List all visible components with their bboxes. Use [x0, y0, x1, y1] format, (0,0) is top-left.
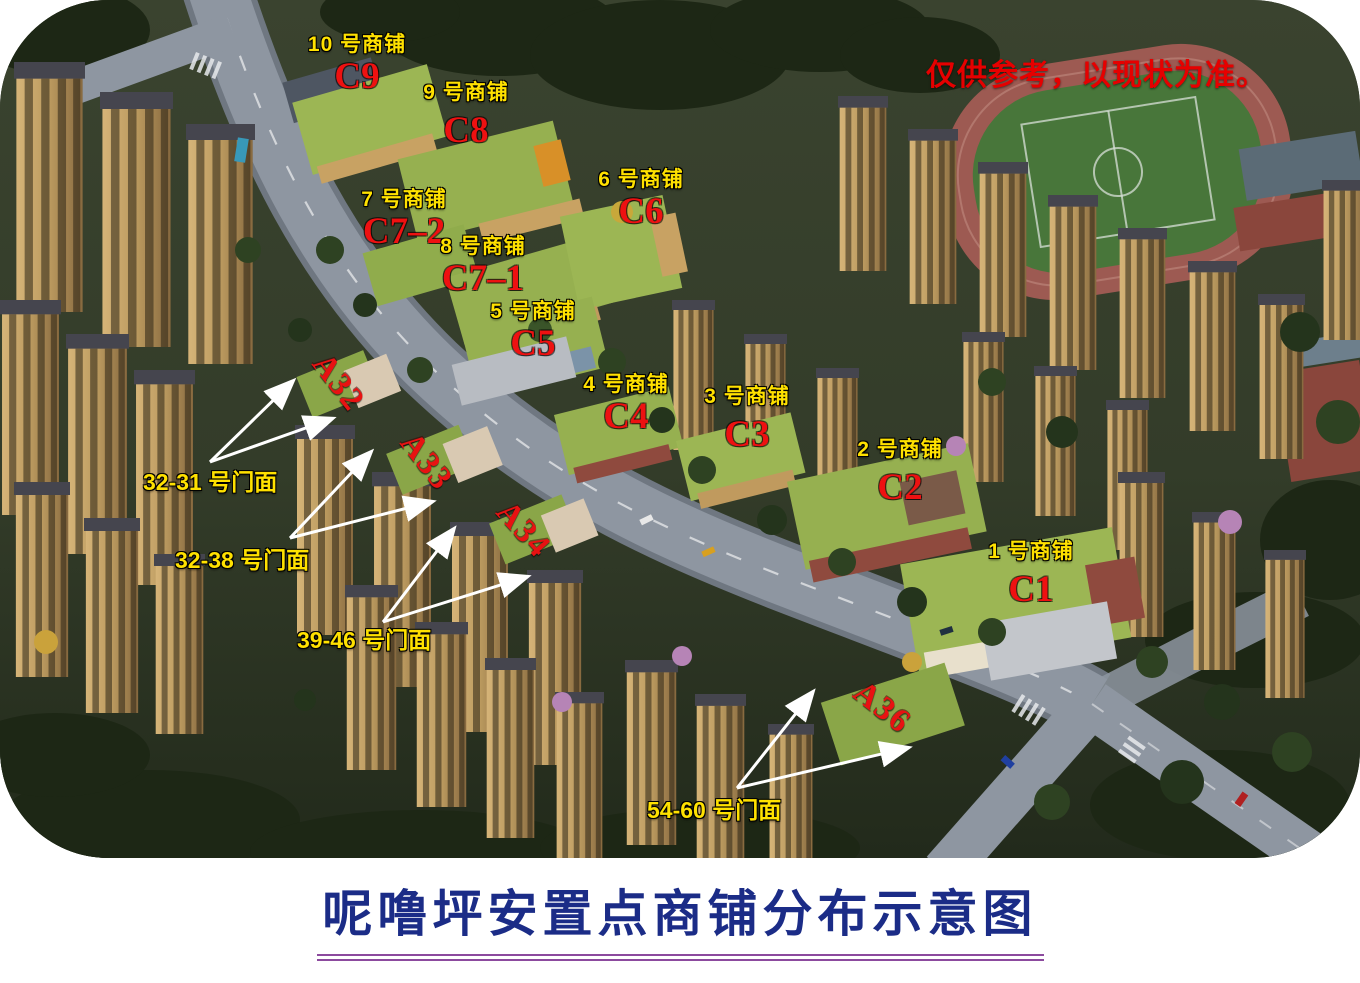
label-storefront-39-46: 39-46 号门面	[297, 621, 431, 655]
label-shop-2: 2 号商铺 C2	[810, 439, 990, 506]
shop-name: 8 号商铺	[393, 236, 573, 258]
shop-name: 2 号商铺	[810, 439, 990, 461]
shop-name: 5 号商铺	[443, 301, 623, 323]
label-storefront-54-60: 54-60 号门面	[647, 791, 781, 825]
shop-code: C2	[810, 469, 990, 506]
shop-code: C9	[267, 58, 447, 95]
shop-name: 1 号商铺	[941, 541, 1121, 563]
aerial-photo: 1 号商铺 C1 2 号商铺 C2 3 号商铺 C3 4 号商铺 C4 5 号商…	[0, 0, 1360, 858]
shop-name: 4 号商铺	[536, 374, 716, 396]
shop-code: C7–1	[393, 260, 573, 297]
label-shop-5: 5 号商铺 C5	[443, 301, 623, 362]
label-shop-6: 6 号商铺 C6	[551, 169, 731, 230]
disclaimer-note: 仅供参考，以现状为准。	[926, 50, 1267, 94]
shop-code: C4	[536, 398, 716, 435]
label-storefront-32-38: 32-38 号门面	[175, 541, 309, 575]
label-storefront-32-31: 32-31 号门面	[143, 463, 277, 497]
shop-code: C5	[443, 325, 623, 362]
label-shop-4: 4 号商铺 C4	[536, 374, 716, 435]
shop-name: 6 号商铺	[551, 169, 731, 191]
shop-distribution-map: 1 号商铺 C1 2 号商铺 C2 3 号商铺 C3 4 号商铺 C4 5 号商…	[0, 0, 1360, 983]
label-shop-1: 1 号商铺 C1	[941, 541, 1121, 608]
label-shop-8: 8 号商铺 C7–1	[393, 236, 573, 297]
page-title: 呢噜坪安置点商铺分布示意图	[0, 874, 1360, 961]
shop-name: 7 号商铺	[314, 189, 494, 211]
page-title-text: 呢噜坪安置点商铺分布示意图	[317, 874, 1044, 961]
shop-code: C6	[551, 193, 731, 230]
label-shop-10: 10 号商铺 C9	[267, 34, 447, 95]
shop-code: C1	[941, 571, 1121, 608]
shop-name: 10 号商铺	[267, 34, 447, 56]
shop-code: C8	[376, 112, 556, 149]
